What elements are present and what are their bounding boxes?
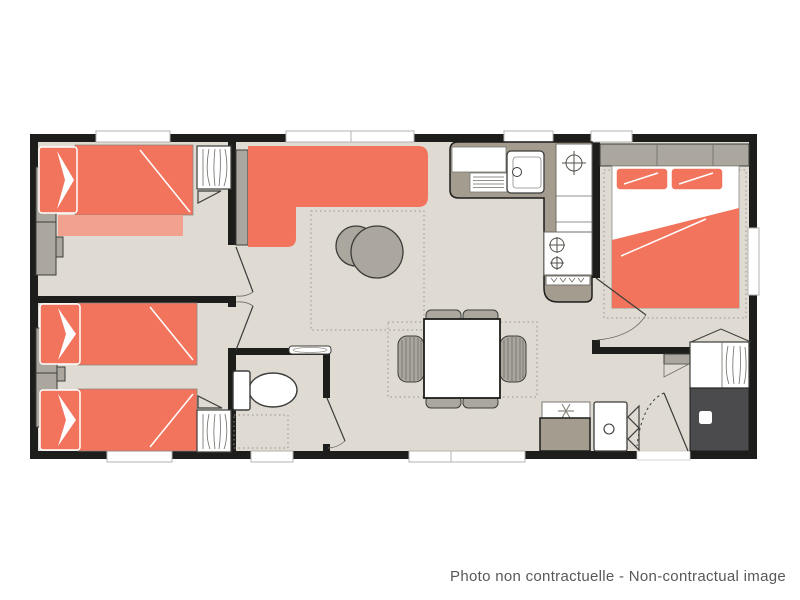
wall-hall-mid	[228, 296, 236, 307]
single-bed	[78, 389, 197, 451]
wardrobe	[36, 222, 56, 275]
wall-right	[749, 134, 757, 459]
window-bedroom1	[96, 131, 170, 142]
chair	[398, 336, 424, 382]
water-heater	[594, 402, 627, 451]
gauge-icon	[604, 424, 614, 434]
oven-vent	[546, 276, 590, 285]
window-wc	[251, 451, 293, 462]
freezer-unit	[540, 402, 590, 451]
worktop-cabinet	[452, 147, 506, 172]
window-dining	[409, 451, 525, 462]
shower	[690, 388, 749, 451]
dining-table	[424, 319, 500, 398]
pillow	[616, 168, 668, 190]
window-kitchen	[504, 131, 553, 142]
coffee-table	[351, 226, 403, 278]
window-living	[286, 131, 414, 142]
bed	[75, 145, 193, 215]
drainer	[470, 173, 507, 192]
single-bed	[78, 303, 197, 365]
shower-drain	[699, 411, 712, 424]
non-contractual-caption: Photo non contractuelle - Non-contractua…	[450, 568, 786, 585]
wall-wc-right-stub	[323, 444, 330, 451]
floorplan-page: Photo non contractuelle - Non-contractua…	[0, 0, 800, 600]
sideboard	[236, 150, 248, 245]
pillow	[671, 168, 723, 190]
cooktop	[544, 232, 592, 275]
window-master-right	[748, 228, 759, 295]
chair	[500, 336, 526, 382]
toilet-bowl	[249, 373, 297, 407]
master-door-leaf	[664, 354, 690, 364]
sink	[507, 151, 544, 193]
floorplan-canvas	[0, 0, 800, 600]
toilet-tank	[233, 371, 250, 410]
headboard-unit	[600, 144, 749, 166]
folded-blanket	[58, 215, 183, 236]
faucet-icon	[513, 168, 522, 177]
wall-master-hall	[592, 347, 692, 354]
wall-between-bedrooms	[38, 296, 228, 303]
window-bedroom2	[107, 451, 172, 462]
wall-wc-right	[323, 355, 330, 398]
double-bed	[612, 166, 739, 308]
appliance-column	[556, 144, 592, 232]
entrance-door-opening	[637, 451, 690, 460]
wardrobe-knob	[57, 367, 65, 381]
cabinet	[540, 418, 590, 451]
window-master-top	[591, 131, 632, 142]
wall-kitchen-master	[592, 142, 600, 278]
wardrobe-knob	[56, 237, 63, 257]
